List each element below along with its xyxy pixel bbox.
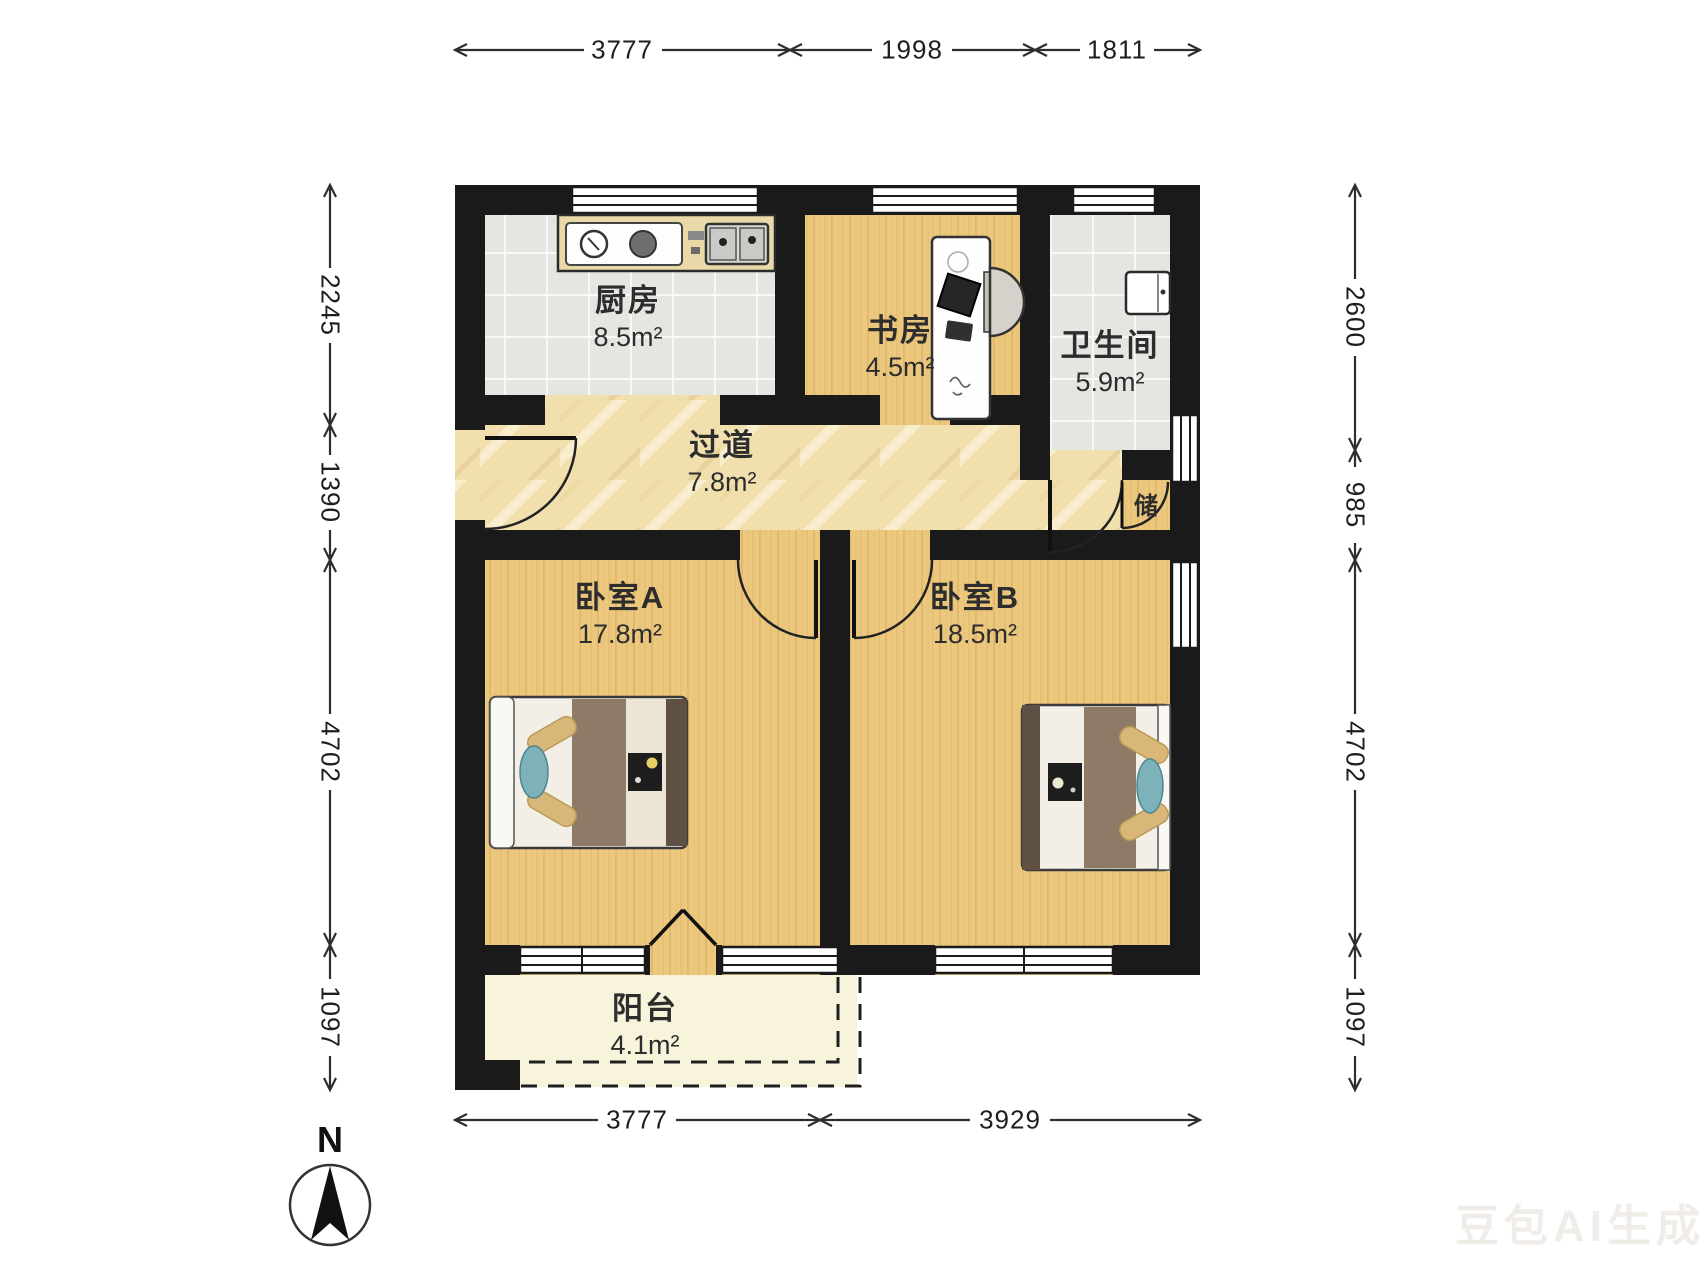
room-area: 18.5m²	[930, 618, 1020, 652]
dim-top-1: 3777	[591, 35, 653, 66]
room-area: 5.9m²	[1061, 366, 1160, 400]
bedroom-b-opening	[850, 530, 930, 560]
wall-bottom-center	[838, 945, 935, 975]
bed-a-footboard	[666, 699, 687, 846]
bedroom-b-side-window	[1172, 562, 1198, 648]
room-name: 卧室A	[575, 579, 665, 618]
wall-balcony-corner	[455, 1060, 520, 1090]
bedroom-a-opening	[740, 530, 820, 560]
wall-bottom-b-right	[1113, 945, 1170, 975]
dim-right-4: 1097	[1340, 986, 1371, 1048]
dim-top-3: 1811	[1087, 35, 1147, 66]
burner-right	[630, 231, 656, 257]
room-area: 4.5m²	[865, 351, 934, 385]
bed-a-cushion	[520, 746, 548, 798]
dim-left-4: 1097	[315, 986, 346, 1048]
wall-left-upper	[455, 215, 485, 430]
room-label-bathroom: 卫生间 5.9m²	[1061, 327, 1160, 400]
wall-kitchen-study	[775, 215, 805, 425]
dim-right-2: 985	[1340, 482, 1371, 528]
room-area: 17.8m²	[575, 618, 665, 652]
room-label-study: 书房 4.5m²	[865, 312, 934, 385]
wall-bedroom-divider	[820, 530, 850, 975]
room-name: 过道	[687, 427, 756, 466]
hallway-floor	[485, 425, 1050, 530]
bed-b	[1022, 705, 1172, 870]
dim-left-3: 4702	[315, 721, 346, 783]
room-name: 厨房	[593, 282, 662, 321]
room-label-bedroom-a: 卧室A 17.8m²	[575, 579, 665, 652]
kitchen-window	[572, 187, 758, 213]
counter-mark	[688, 231, 704, 240]
bathroom-washer	[1126, 272, 1170, 314]
wall-study-bath	[1020, 215, 1050, 480]
room-name: 阳台	[610, 990, 679, 1029]
room-area: 7.8m²	[687, 466, 756, 500]
bedroom-b-bottom-window	[935, 947, 1113, 973]
wall-kitchen-bottom-left	[485, 395, 545, 425]
bed-a	[490, 697, 687, 848]
bedroom-a-balcony-window-1	[520, 947, 645, 973]
room-label-storage: 储	[1134, 492, 1158, 522]
wall-kitchen-bottom-right	[720, 395, 775, 425]
sink	[706, 224, 768, 264]
bed-a-headboard	[490, 697, 514, 848]
wall-left-lower	[455, 520, 485, 1090]
room-name: 书房	[865, 312, 934, 351]
room-label-hallway: 过道 7.8m²	[687, 427, 756, 500]
study-window	[872, 187, 1018, 213]
dim-top-2: 1998	[881, 35, 943, 66]
bed-a-tray	[628, 753, 662, 791]
entrance-opening	[455, 430, 485, 520]
bed-b-footboard	[1022, 705, 1040, 870]
bed-a-blanket	[572, 699, 626, 846]
watermark: 豆包AI生成	[1455, 1190, 1705, 1254]
bedroom-a-balcony-window-2	[722, 947, 838, 973]
wall-study-bottom-left	[805, 395, 880, 425]
dim-bottom-1: 3777	[606, 1105, 668, 1136]
keyboard	[945, 320, 973, 341]
room-area: 8.5m²	[593, 321, 662, 355]
room-label-kitchen: 厨房 8.5m²	[593, 282, 662, 355]
floor-plan-drawing	[0, 0, 1707, 1280]
compass-north-label: N	[317, 1119, 343, 1161]
room-area: 4.1m²	[610, 1029, 679, 1063]
wall-bottom-a-left	[485, 945, 520, 975]
compass	[290, 1165, 370, 1245]
dim-left-2: 1390	[315, 461, 346, 523]
room-label-bedroom-b: 卧室B 18.5m²	[930, 579, 1020, 652]
bathroom-window	[1073, 187, 1155, 213]
dim-left-1: 2245	[315, 274, 346, 336]
dim-bottom-2: 3929	[979, 1105, 1041, 1136]
dim-right-3: 4702	[1340, 721, 1371, 783]
wall-hall-bottom-left	[485, 530, 740, 560]
floor-plan-canvas: 厨房 8.5m² 书房 4.5m² 卫生间 5.9m² 过道 7.8m² 卧室A…	[0, 0, 1707, 1280]
room-label-balcony: 阳台 4.1m²	[610, 990, 679, 1063]
kitchen-counter	[558, 215, 775, 271]
room-name: 储	[1134, 492, 1158, 522]
kitchen-opening	[545, 395, 720, 425]
room-name: 卧室B	[930, 579, 1020, 618]
bed-b-cushion	[1137, 759, 1163, 813]
counter-mark-2	[691, 247, 700, 254]
room-name: 卫生间	[1061, 327, 1160, 366]
right-small-window	[1172, 415, 1198, 482]
dim-right-1: 2600	[1340, 286, 1371, 348]
